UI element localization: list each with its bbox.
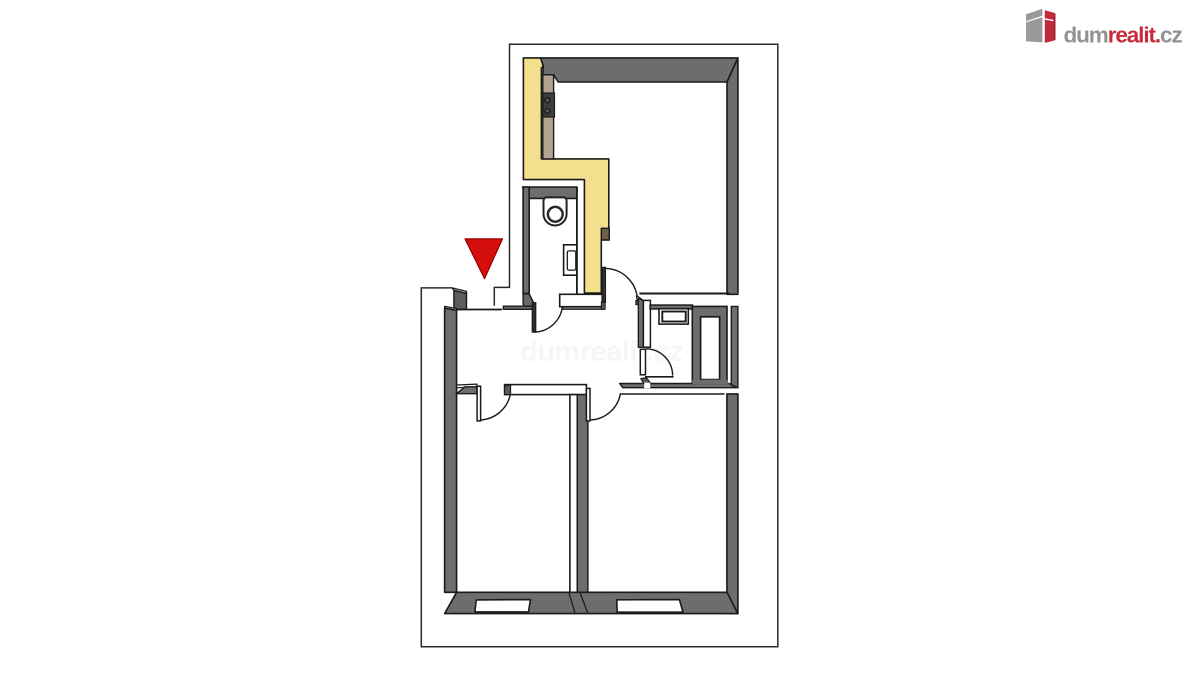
svg-text:dumrealit.cz: dumrealit.cz	[1064, 23, 1183, 48]
